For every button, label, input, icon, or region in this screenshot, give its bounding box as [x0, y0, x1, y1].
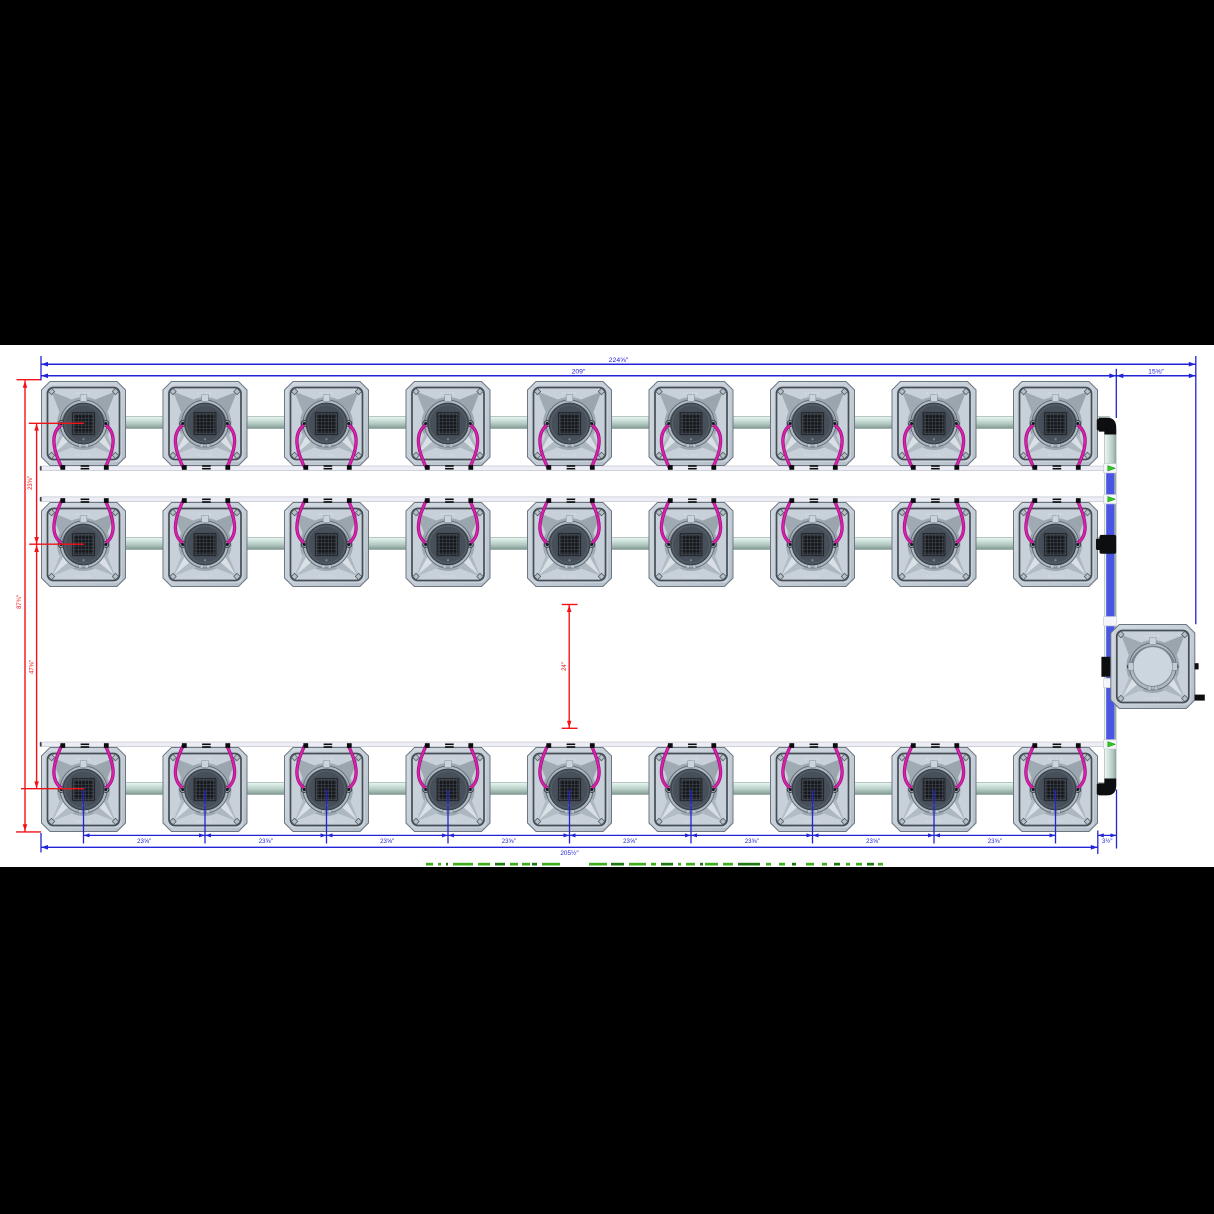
- svg-text:224⅝″: 224⅝″: [609, 357, 629, 364]
- svg-text:23⅝″: 23⅝″: [28, 475, 34, 490]
- svg-text:23⅝″: 23⅝″: [745, 838, 760, 845]
- svg-text:23⅝″: 23⅝″: [623, 838, 638, 845]
- svg-text:15⅝″: 15⅝″: [1148, 368, 1164, 375]
- svg-text:23⅝″: 23⅝″: [988, 838, 1003, 845]
- svg-text:209″: 209″: [572, 368, 586, 375]
- svg-text:23⅝″: 23⅝″: [866, 838, 881, 845]
- svg-text:3½″: 3½″: [1102, 838, 1113, 845]
- svg-text:205½″: 205½″: [560, 849, 579, 857]
- svg-text:23⅝″: 23⅝″: [380, 838, 395, 845]
- svg-text:23⅝″: 23⅝″: [502, 838, 517, 845]
- svg-text:47⅝″: 47⅝″: [30, 659, 36, 674]
- svg-text:87¾″: 87¾″: [17, 594, 23, 609]
- svg-text:24″: 24″: [562, 661, 568, 671]
- svg-text:23⅝″: 23⅝″: [137, 838, 152, 845]
- svg-text:23⅝″: 23⅝″: [259, 838, 274, 845]
